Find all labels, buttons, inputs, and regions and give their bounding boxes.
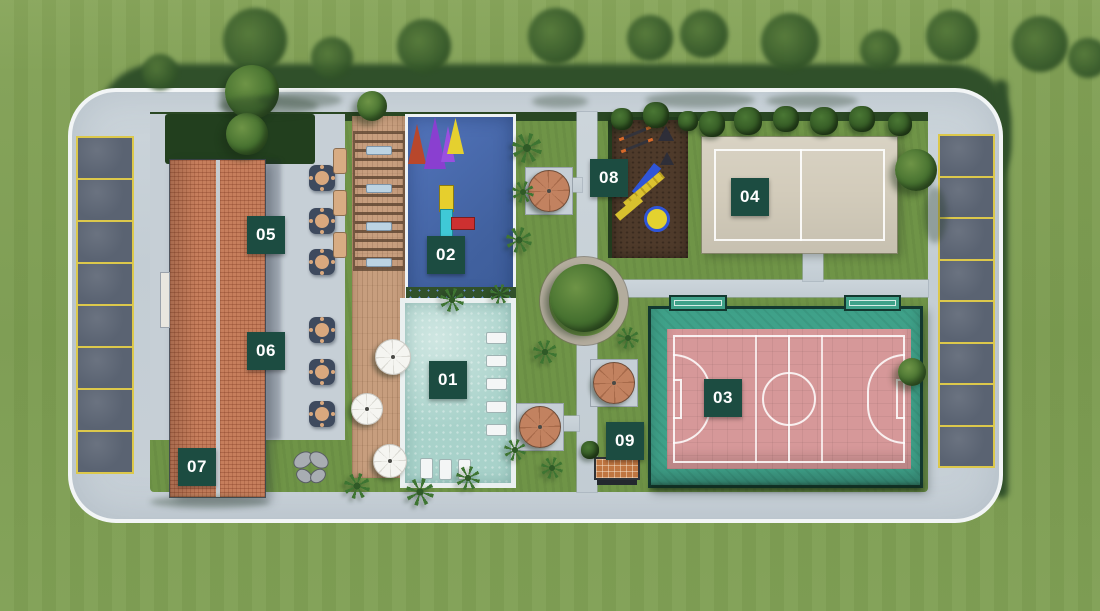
area-badge-04: 04 — [731, 178, 769, 216]
area-badge-09: 09 — [606, 422, 644, 460]
area-badge-06: 06 — [247, 332, 285, 370]
area-badge-07: 07 — [178, 448, 216, 486]
site-plan-scene: 010203040506070809 — [0, 0, 1100, 611]
area-badge-08: 08 — [590, 159, 628, 197]
area-badge-01: 01 — [429, 361, 467, 399]
area-badge-05: 05 — [247, 216, 285, 254]
area-badge-02: 02 — [427, 236, 465, 274]
badges-layer: 010203040506070809 — [0, 0, 1100, 611]
area-badge-03: 03 — [704, 379, 742, 417]
